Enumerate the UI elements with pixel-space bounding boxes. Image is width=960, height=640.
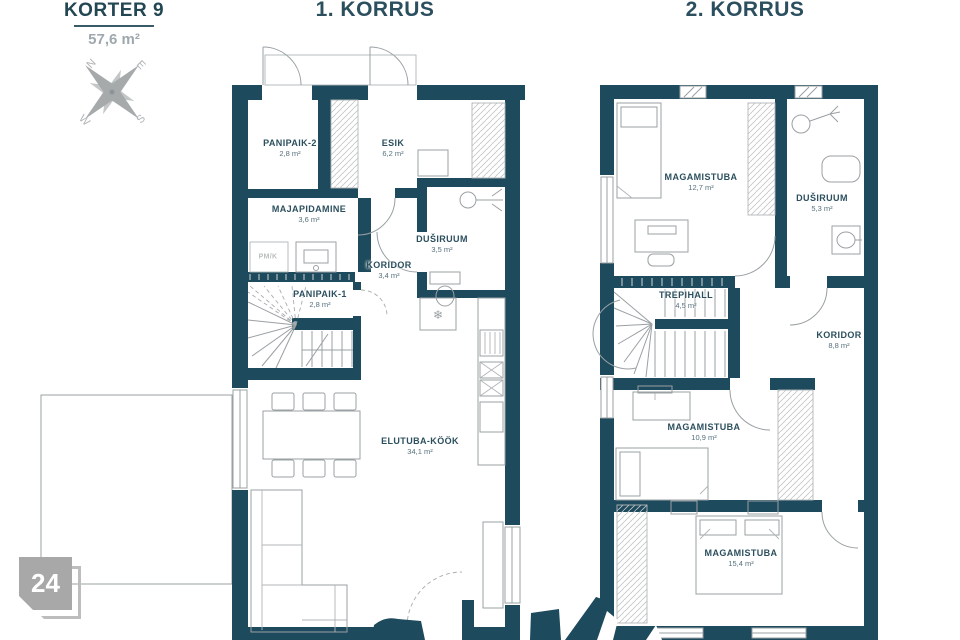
room-label-dusiruum-f1: DUŠIRUUM 3,5 m² [416,234,468,254]
room-area: 8,8 m² [816,341,861,350]
fridge-snowflake-icon: ❄ [433,308,443,322]
room-area: 10,9 m² [668,433,741,442]
room-label-koridor-f2: KORIDOR 8,8 m² [816,330,861,350]
compass-rose-icon: N E S W [58,38,165,145]
room-label-panipaik-1: PANIPAIK-1 2,8 m² [293,289,347,309]
plot-number-badge: 24 [19,557,83,621]
room-area: 2,8 m² [293,300,347,309]
header-divider [74,25,154,27]
room-name: PANIPAIK-1 [293,289,347,299]
terrace-outline [41,395,232,584]
room-label-panipaik-2: PANIPAIK-2 2,8 m² [263,138,317,158]
room-name: PANIPAIK-2 [263,138,317,148]
room-label-magamistuba-1: MAGAMISTUBA 12,7 m² [665,172,738,192]
floor2-bedroom2-furniture [616,386,708,500]
room-name: TREPIHALL [659,290,713,300]
compass-s-label: S [134,112,148,126]
apartment-header: KORTER 9 57,6 m² [64,0,164,48]
room-label-esik: ESIK 6,2 m² [382,138,405,158]
floor2-bathroom-fixtures [792,106,862,254]
room-area: 2,8 m² [263,149,317,158]
floor1-windows [233,390,520,603]
room-label-elutuba-kook: ELUTUBA-KÖÖK 34,1 m² [381,436,459,456]
badge-fill: 24 [19,557,72,610]
plot-number: 24 [31,568,60,599]
apartment-total-area: 57,6 m² [64,31,164,48]
room-area: 6,2 m² [382,149,405,158]
floor1-kitchen [418,150,505,608]
room-label-dusiruum-f2: DUŠIRUUM 5,3 m² [796,193,848,213]
washer-dryer-label: PM/K [259,254,278,261]
floor2-title: 2. KORRUS [686,0,805,22]
room-label-trepihall: TREPIHALL 4,5 m² [659,290,713,310]
room-name: MAGAMISTUBA [668,422,741,432]
room-name: ESIK [382,138,405,148]
apartment-title: KORTER 9 [64,0,164,22]
room-area: 4,5 m² [659,301,713,310]
floor1-title: 1. KORRUS [316,0,435,22]
floor1-entry-doors [263,47,416,85]
room-area: 3,5 m² [416,245,468,254]
floorplan-page: N E S W [0,0,960,640]
floorplan-drawing: N E S W [0,0,960,640]
floor1-dining-set [263,393,360,477]
room-area: 3,6 m² [272,215,346,224]
room-name: MAGAMISTUBA [705,548,778,558]
compass-e-label: E [134,58,148,72]
room-name: DUŠIRUUM [796,193,848,203]
room-name: MAJAPIDAMINE [272,204,346,214]
room-label-magamistuba-3: MAGAMISTUBA 15,4 m² [705,548,778,568]
room-area: 5,3 m² [796,204,848,213]
room-name: KORIDOR [816,330,861,340]
room-area: 34,1 m² [381,447,459,456]
floor1-sofa [251,490,347,632]
room-label-magamistuba-2: MAGAMISTUBA 10,9 m² [668,422,741,442]
room-name: MAGAMISTUBA [665,172,738,182]
room-name: DUŠIRUUM [416,234,468,244]
room-area: 12,7 m² [665,183,738,192]
room-area: 3,4 m² [366,271,411,280]
room-label-majapidamine: MAJAPIDAMINE 3,6 m² [272,204,346,224]
room-label-koridor-f1: KORIDOR 3,4 m² [366,260,411,280]
room-name: ELUTUBA-KÖÖK [381,436,459,446]
compass-n-label: N [84,57,98,71]
room-area: 15,4 m² [705,559,778,568]
room-name: KORIDOR [366,260,411,270]
